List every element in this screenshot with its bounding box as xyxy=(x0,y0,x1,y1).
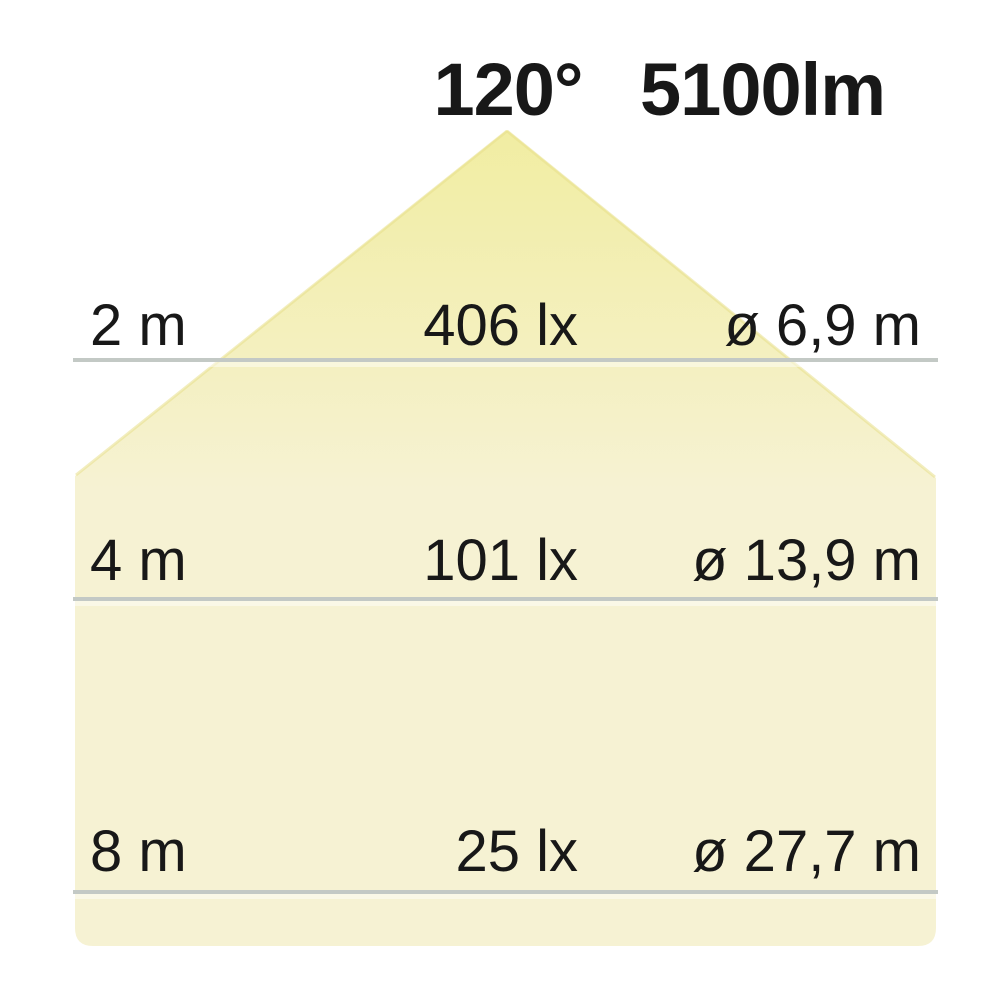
illuminance-label: 406 lx xyxy=(320,297,578,355)
distance-line-2m-highlight xyxy=(73,362,938,367)
diameter-label: ø 6,9 m xyxy=(618,297,921,355)
luminous-flux-label: 5100lm xyxy=(633,53,885,127)
distance-label: 4 m xyxy=(90,532,330,590)
distance-line-4m-highlight xyxy=(73,601,938,606)
photometric-beam-diagram: 120° 5100lm 2 m 406 lx ø 6,9 m 4 m 101 l… xyxy=(0,0,1000,1000)
distance-line-8m-highlight xyxy=(73,894,938,899)
diameter-label: ø 13,9 m xyxy=(618,532,921,590)
distance-line-8m xyxy=(73,890,938,894)
distance-label: 8 m xyxy=(90,823,330,881)
beam-angle-label: 120° xyxy=(408,53,608,127)
diameter-label: ø 27,7 m xyxy=(618,823,921,881)
measurement-row-4m: 4 m 101 lx ø 13,9 m xyxy=(0,532,1000,594)
measurement-row-2m: 2 m 406 lx ø 6,9 m xyxy=(0,297,1000,359)
distance-label: 2 m xyxy=(90,297,330,355)
illuminance-label: 101 lx xyxy=(320,532,578,590)
illuminance-label: 25 lx xyxy=(320,823,578,881)
distance-line-4m xyxy=(73,597,938,601)
measurement-row-8m: 8 m 25 lx ø 27,7 m xyxy=(0,823,1000,885)
